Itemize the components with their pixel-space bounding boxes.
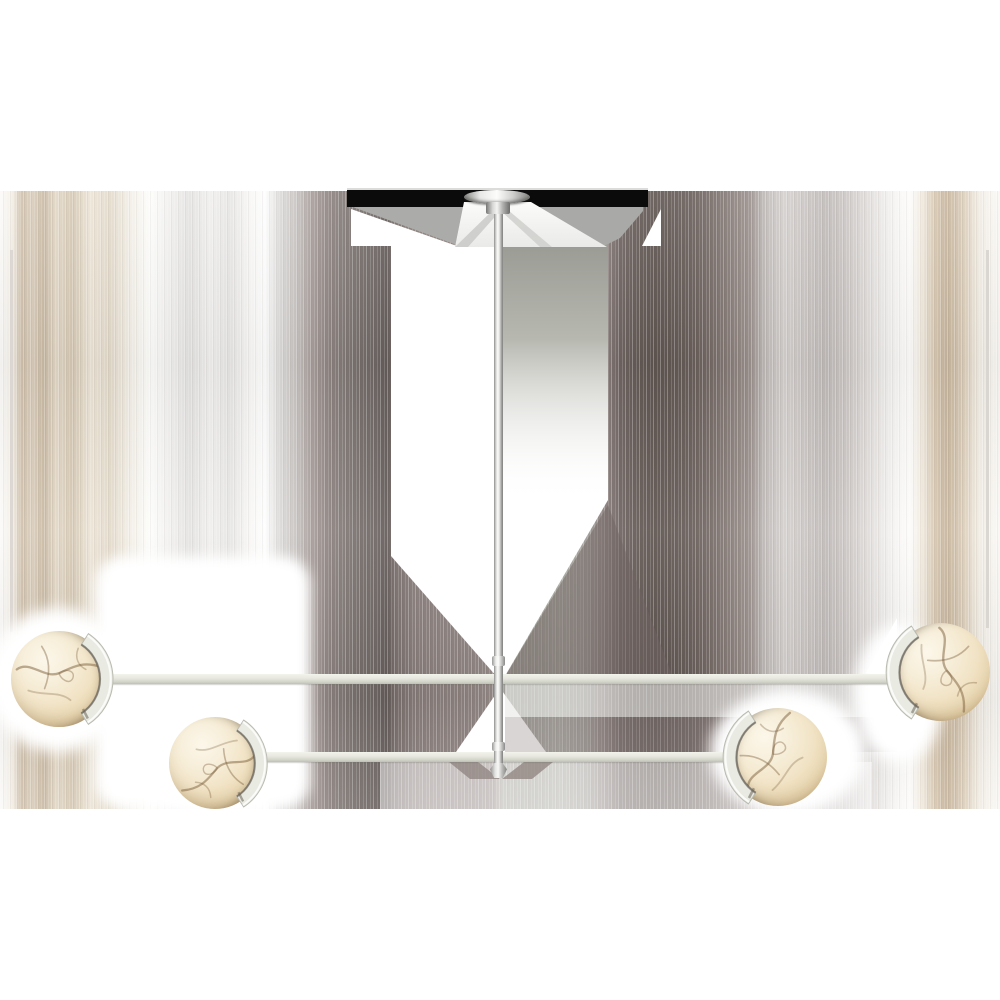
globe-right-outer [880, 611, 1000, 734]
globe-left-outer [0, 619, 119, 739]
nickel-bracket [880, 611, 1000, 734]
product-image [0, 0, 1000, 1000]
canopy-hub [486, 202, 510, 214]
rod-coupler-upper [492, 656, 505, 666]
nickel-bracket [717, 696, 840, 819]
gray-green-pillar [496, 206, 608, 502]
smear-line-left [10, 250, 13, 632]
downrod [494, 205, 503, 766]
nickel-bracket [158, 706, 273, 821]
rod-coupler-lower [492, 742, 505, 751]
white-sliver-right [642, 209, 661, 246]
nickel-bracket [0, 619, 119, 739]
smear-line-right [986, 250, 989, 628]
globe-left-inner [158, 706, 273, 821]
globe-right-inner [717, 696, 840, 819]
